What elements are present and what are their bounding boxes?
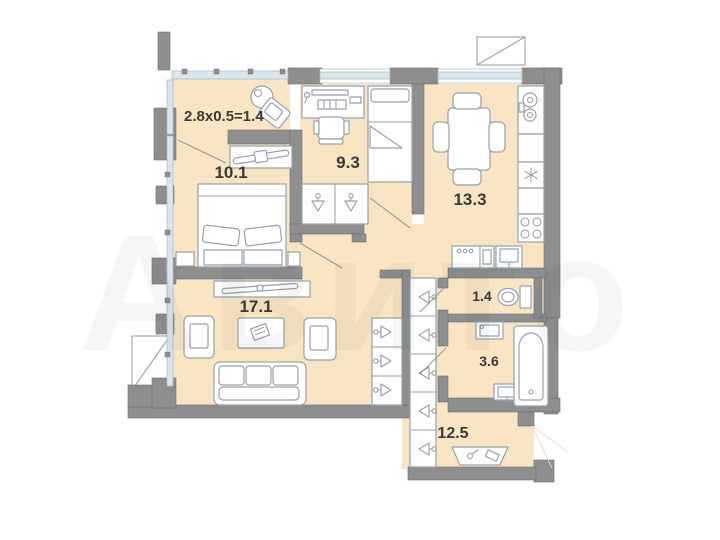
balcony-glazing-left (167, 80, 173, 134)
room-label-balcony: 2.8x0.5=1.4 (184, 108, 264, 125)
fridge-icon (518, 162, 544, 188)
shoe-bench-icon (452, 447, 508, 465)
balcony-glazing-top (172, 71, 288, 79)
room-label-room: 9.3 (336, 153, 360, 172)
exterior-pier (158, 32, 170, 70)
desk-icon (302, 86, 364, 118)
kitchen-counter (518, 134, 544, 162)
window-room (320, 69, 390, 83)
single-bed-icon (368, 86, 412, 182)
floor-plan-page: 2.8x0.5=1.4 10.1 9.3 13.3 17.1 1.4 3.6 1… (0, 0, 720, 540)
window-kitchen (438, 69, 522, 83)
neighbor-balcony-top-icon (477, 37, 525, 65)
kitchen-sink-icon (518, 86, 544, 134)
avito-watermark: Авито (79, 201, 640, 385)
room-label-hallway: 12.5 (437, 425, 468, 442)
room-label-bedroom: 10.1 (214, 163, 247, 182)
floor-plan: 2.8x0.5=1.4 10.1 9.3 13.3 17.1 1.4 3.6 1… (0, 0, 720, 540)
